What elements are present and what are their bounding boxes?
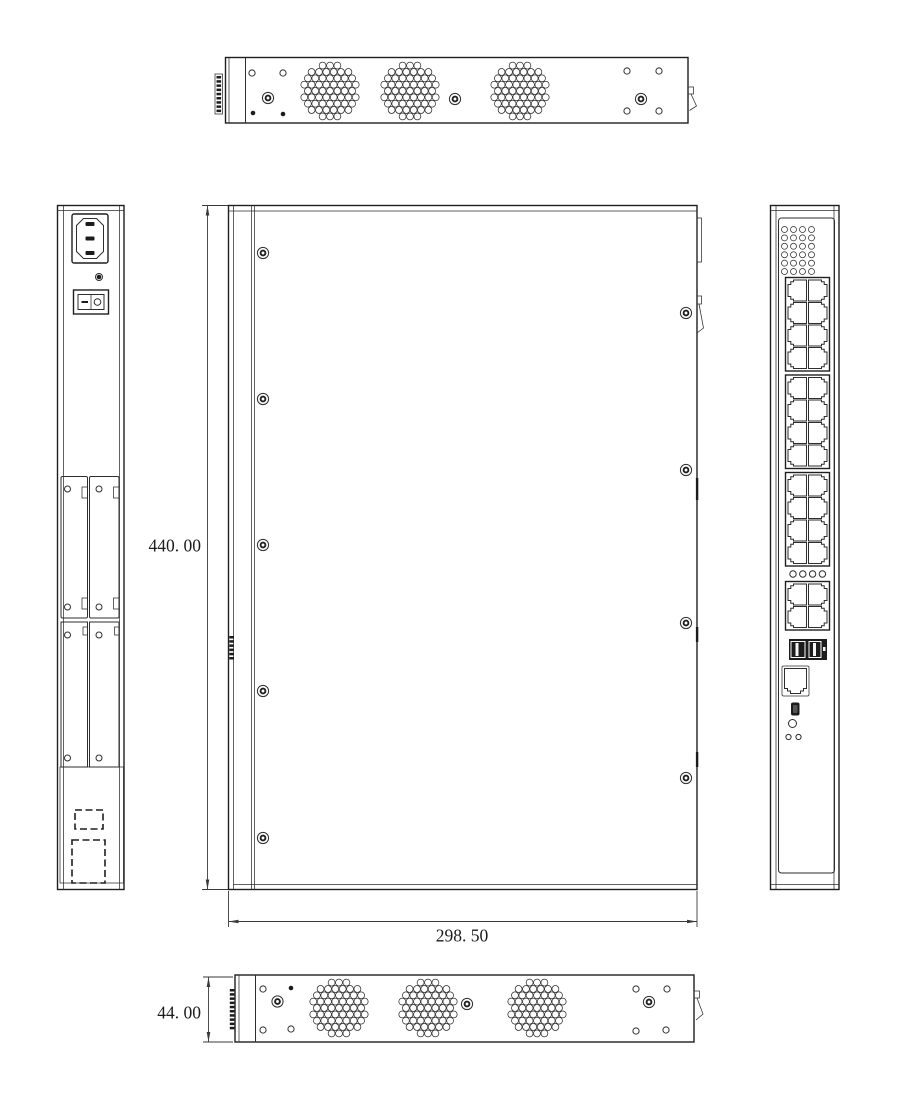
vent-hole [552,1011,559,1018]
vent-hole [528,69,535,76]
vent-hole [345,81,352,88]
vent-hole [410,1005,417,1012]
vent-hole [432,1005,439,1012]
vent-hole [402,1005,409,1012]
vent-hole [515,998,522,1005]
led-hole [809,269,815,275]
screw [257,247,268,258]
vent-hole [301,94,308,101]
vent-hole [339,1011,346,1018]
vent-hole [556,1017,563,1024]
vent-hole [323,81,330,88]
vent-hole [338,69,345,76]
vent-hole [509,62,516,69]
retainer-clip [82,487,88,498]
vent-hole [429,100,436,107]
vent-hole [343,992,350,999]
vent-hole [528,81,535,88]
rivet [281,112,286,117]
serration-tooth [217,101,222,104]
serration-tooth [229,657,234,660]
vent-hole [327,100,334,107]
height-dimension-label: 440. 00 [149,536,202,556]
vent-hole [534,1017,541,1024]
vent-hole [327,62,334,69]
module-tongue [796,643,799,656]
vent-hole [515,986,522,993]
vent-hole [403,107,410,114]
vent-hole [332,986,339,993]
vent-hole [520,107,527,114]
screw [257,539,268,550]
serrated-bracket [230,989,235,1029]
screw-outer [257,539,268,550]
rj45-port [788,445,807,466]
screw-inner [684,776,689,781]
latch-hook [696,998,703,1020]
vent-hole [312,88,319,95]
vent-hole [399,100,406,107]
vent-hole [447,992,454,999]
vent-hole [343,1005,350,1012]
screw-hole [260,986,266,992]
vent-hole [556,1005,563,1012]
vent-hole [428,1011,435,1018]
vent-hole [325,1011,332,1018]
dim-arrow [207,1032,211,1042]
vent-hole [354,1024,361,1031]
retainer-clip [82,598,88,609]
vent-hole [520,69,527,76]
vent-hole [447,1017,454,1024]
rj45-port [788,607,807,628]
vent-hole [421,1011,428,1018]
vent-hole [512,1005,519,1012]
vent-cluster [399,979,457,1037]
vent-hole [358,1017,365,1024]
edge-tick [696,478,698,500]
rj45-port [788,543,807,564]
vent-hole [421,88,428,95]
vent-hole [334,75,341,82]
vent-hole [523,1024,530,1031]
vent-hole [429,88,436,95]
vent-hole [361,1011,368,1018]
vent-hole [432,1030,439,1037]
vent-hole [308,81,315,88]
vent-hole [349,88,356,95]
vent-hole [328,1017,335,1024]
vent-hole [350,1017,357,1024]
screw-inner [266,96,271,101]
dim-arrow [229,920,239,924]
vent-hole [410,94,417,101]
latch-hook [690,94,697,111]
vent-hole [509,113,516,120]
led-hole [800,252,806,258]
vent-hole [506,81,513,88]
vent-hole [436,1024,443,1031]
vent-hole [545,1024,552,1031]
vent-hole [417,1030,424,1037]
center-view [229,206,704,890]
vent-hole [323,94,330,101]
vent-hole [519,992,526,999]
screw-inner [261,836,266,841]
screw-hole [96,604,102,610]
status-led [786,734,791,739]
vent-hole [406,1011,413,1018]
vent-cluster [508,979,566,1037]
vent-hole [417,992,424,999]
vent-hole [512,992,519,999]
led-hole [791,227,797,233]
vent-hole [339,1024,346,1031]
led-hole [800,235,806,241]
rj45-port [809,348,828,369]
vent-hole [343,1030,350,1037]
vent-hole [414,62,421,69]
screw-inner [684,311,689,316]
vent-hole [327,88,334,95]
center-view-outline [229,206,698,890]
vent-hole [425,992,432,999]
vent-hole [328,1030,335,1037]
vent-hole [327,75,334,82]
screw-hole [96,486,102,492]
vent-hole [531,100,538,107]
vent-hole [541,1017,548,1024]
vent-hole [350,992,357,999]
vent-hole [325,986,332,993]
vent-hole [517,62,524,69]
vent-hole [410,69,417,76]
vent-hole [313,1017,320,1024]
led-hole [791,269,797,275]
ethernet-ports-1-8 [786,278,830,372]
vent-hole [541,979,548,986]
vent-hole [407,88,414,95]
power-pin-slot [86,237,95,241]
vent-hole [317,986,324,993]
vent-hole [316,107,323,114]
vent-hole [436,1011,443,1018]
vent-hole [328,1005,335,1012]
rj45-port [788,475,807,496]
rj45-port [809,520,828,541]
vent-cluster [310,979,368,1037]
vent-hole [439,992,446,999]
vent-hole [498,69,505,76]
vent-hole [319,75,326,82]
vent-hole [354,1011,361,1018]
screw-outer [461,998,472,1009]
vent-hole [519,1005,526,1012]
rivet [97,275,102,280]
vent-hole [526,979,533,986]
vent-hole [403,94,410,101]
vent-hole [327,113,334,120]
vent-hole [358,1005,365,1012]
led-hole [809,260,815,266]
screw [635,93,646,104]
vent-hole [319,100,326,107]
vent-hole [410,107,417,114]
screw-hole [288,1026,294,1032]
vent-hole [414,986,421,993]
vent-hole [414,75,421,82]
port-block-frame [786,473,830,567]
port-led [819,571,825,577]
vent-hole [425,107,432,114]
screw [680,307,691,318]
vent-hole [539,88,546,95]
vent-hole [534,1030,541,1037]
vent-hole [384,75,391,82]
vent-hole [313,992,320,999]
rj45-port [788,400,807,421]
screw-hole [65,486,71,492]
rj45-port [788,584,807,605]
vent-hole [443,1024,450,1031]
serration-tooth [230,1027,235,1030]
vent-hole [520,94,527,101]
serration-tooth [229,653,234,656]
serration-tooth [230,1018,235,1021]
screw-inner [684,621,689,626]
vent-hole [498,81,505,88]
vent-hole [548,1017,555,1024]
vent-hole [559,998,566,1005]
vent-hole [541,1005,548,1012]
vent-hole [334,88,341,95]
vent-hole [396,69,403,76]
vent-hole [349,100,356,107]
vent-hole [414,88,421,95]
vent-hole [421,998,428,1005]
rj45-port [809,325,828,346]
vent-hole [559,1011,566,1018]
rj45-port [788,423,807,444]
screw-inner [465,1002,470,1007]
mechanical-drawing-canvas: 440. 00 298. 50 44. 00 [0,0,905,1113]
vent-hole [530,1011,537,1018]
ethernet-ports-17-24 [786,473,830,567]
vent-hole [323,69,330,76]
vent-hole [421,75,428,82]
serration-tooth [217,89,222,92]
vent-hole [312,100,319,107]
vent-hole [526,1005,533,1012]
vent-hole [410,992,417,999]
vent-hole [436,998,443,1005]
led-hole [791,252,797,258]
mini-usb-inner [793,705,798,713]
led-hole [800,243,806,249]
status-led [796,734,801,739]
serration-tooth [229,644,234,647]
vent-hole [509,75,516,82]
serration-tooth [230,1014,235,1017]
screw-hole [663,1027,669,1033]
vent-hole [425,81,432,88]
vent-hole [425,979,432,986]
port-led [800,571,806,577]
vent-hole [388,81,395,88]
screw-hole [624,68,630,74]
vent-hole [421,986,428,993]
dimension-440: 440. 00 [149,206,229,890]
vent-hole [336,992,343,999]
power-switch [74,290,109,314]
led-hole [791,260,797,266]
vent-hole [384,88,391,95]
vent-hole [539,100,546,107]
screw-outer [449,93,460,104]
serration-tooth [217,84,222,87]
vent-hole [319,113,326,120]
vent-hole [491,94,498,101]
vent-hole [545,1011,552,1018]
vent-hole [396,94,403,101]
screw-inner [261,251,266,256]
vent-hole [330,69,337,76]
ethernet-ports-9-16 [786,375,830,469]
vent-hole [450,998,457,1005]
vent-hole [418,81,425,88]
drawing-page: 440. 00 298. 50 44. 00 [0,0,905,1113]
vent-hole [443,1011,450,1018]
vent-hole [361,998,368,1005]
vent-hole [328,992,335,999]
led-hole [782,269,788,275]
power-pin-slot [86,251,95,255]
vent-hole [341,88,348,95]
vent-hole [545,998,552,1005]
vent-hole [338,94,345,101]
vent-hole [317,998,324,1005]
led-hole [809,252,815,258]
vent-hole [402,992,409,999]
vent-hole [399,998,406,1005]
vent-hole [352,94,359,101]
vent-hole [417,1005,424,1012]
screw [257,393,268,404]
knockout-cutout [75,810,103,829]
vent-hole [425,1005,432,1012]
vent-hole [381,94,388,101]
latch-tab [688,87,694,94]
vent-hole [328,979,335,986]
rear-view-outline [771,206,840,890]
vent-hole [317,1024,324,1031]
console-port-group [782,666,809,696]
vent-hole [325,998,332,1005]
cover-plate [61,622,88,767]
vent-hole [517,100,524,107]
top-view-outline [226,58,689,124]
vent-hole [392,100,399,107]
vent-hole [403,81,410,88]
vent-hole [336,979,343,986]
vent-hole [330,81,337,88]
vent-hole [417,979,424,986]
serration-tooth [230,1023,235,1026]
vent-hole [425,1017,432,1024]
screw [680,617,691,628]
vent-hole [345,69,352,76]
switch-on-mark [82,301,89,303]
led-hole [800,227,806,233]
serration-tooth [230,993,235,996]
vent-hole [418,94,425,101]
vent-hole [310,1011,317,1018]
vent-hole [308,94,315,101]
vent-hole [428,998,435,1005]
vent-hole [332,1024,339,1031]
rj45-port [809,303,828,324]
vent-hole [334,100,341,107]
vent-hole [407,100,414,107]
screw-outer [680,464,691,475]
vent-hole [535,81,542,88]
vent-hole [343,979,350,986]
screw [680,464,691,475]
vent-hole [407,75,414,82]
serrated-bracket [217,76,222,112]
vent-hole [537,986,544,993]
console-port [785,669,807,694]
vent-hole [399,62,406,69]
led-hole [800,269,806,275]
vent-hole [524,75,531,82]
screw-hole [96,632,102,638]
vent-hole [528,107,535,114]
vent-hole [530,1024,537,1031]
edge-tick [696,627,698,642]
led-hole [791,235,797,241]
vent-hole [414,100,421,107]
vent-hole [545,986,552,993]
rj45-port [788,520,807,541]
screw-hole [249,70,255,76]
vent-hole [399,113,406,120]
console-port-frame [782,666,809,696]
vent-hole [534,992,541,999]
vent-hole [316,81,323,88]
vent-hole [552,986,559,993]
vent-hole [425,69,432,76]
switch-off-mark [94,299,101,306]
vent-hole [418,69,425,76]
vent-hole [513,94,520,101]
screw-hole [624,108,630,114]
vent-hole [349,75,356,82]
led-hole [809,235,815,241]
rivet [251,111,256,116]
vent-hole [432,94,439,101]
vent-hole [406,998,413,1005]
vent-hole [523,998,530,1005]
vent-hole [515,1024,522,1031]
left-side-view [58,206,125,890]
vent-hole [332,1011,339,1018]
screw [680,772,691,783]
vent-hole [336,1005,343,1012]
led-hole [782,260,788,266]
retainer-clip [114,598,120,609]
screw [272,996,283,1007]
